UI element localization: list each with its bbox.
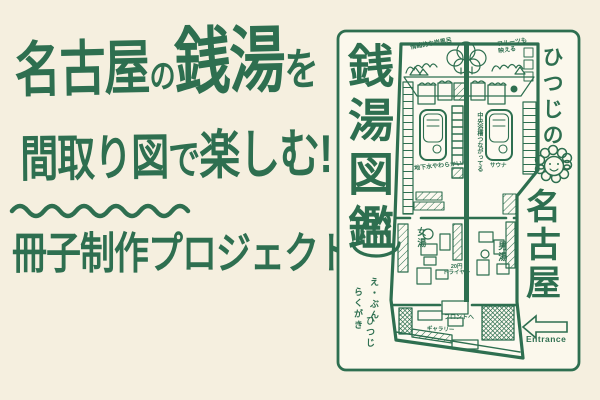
headline-line-2: 間取り図で楽しむ! xyxy=(20,128,332,186)
right-faucet-strip xyxy=(523,102,536,174)
label-entrance: Entrance xyxy=(526,335,566,345)
headline-line-1: 名古屋の銭湯を xyxy=(14,23,318,103)
label-center-bath: 中央浴槽つながってる xyxy=(475,112,482,172)
label-mens-bath: 男湯 xyxy=(497,241,507,263)
label-womens-bath: 女湯 xyxy=(416,227,426,249)
label-sauna: サウナ xyxy=(490,163,507,169)
wavy-underline xyxy=(8,198,213,220)
label-front-desk: フロントへ xyxy=(444,315,474,322)
headline-particle-no: の xyxy=(149,56,175,96)
credit-line: ひつじ xyxy=(365,316,374,349)
vending-machine xyxy=(399,308,412,334)
headline-particle-de: で xyxy=(168,136,199,183)
headline-word-tanoshimu: 楽しむ! xyxy=(199,124,332,186)
floorplan xyxy=(391,42,538,358)
sauna-box xyxy=(503,194,516,214)
headline-word-sento: 銭湯 xyxy=(174,19,285,103)
series-prefix-vertical: ひつじの xyxy=(541,46,562,150)
headline-word-nagoya: 名古屋 xyxy=(14,33,150,104)
label-dryer: 20円 ドライヤー xyxy=(443,264,470,277)
shoe-lockers xyxy=(482,306,514,340)
bath-bench-1 xyxy=(416,192,442,200)
bath-bench-2 xyxy=(414,202,444,210)
city-name-vertical: 名古屋 xyxy=(523,188,558,302)
poster: 名古屋の銭湯を 間取り図で楽しむ! 冊子制作プロジェクト xyxy=(0,0,600,400)
credit-line: え・ぶん xyxy=(369,277,378,321)
left-faucet-strip xyxy=(403,82,413,214)
headline-line-3: 冊子制作プロジェクト xyxy=(12,232,352,276)
headline-word-madorizu: 間取り図 xyxy=(20,131,168,188)
booklet-title-vertical: 銭湯図鑑 xyxy=(344,42,390,258)
headline-particle-wo: を xyxy=(284,45,318,95)
credit-line: らくがき xyxy=(353,287,362,331)
